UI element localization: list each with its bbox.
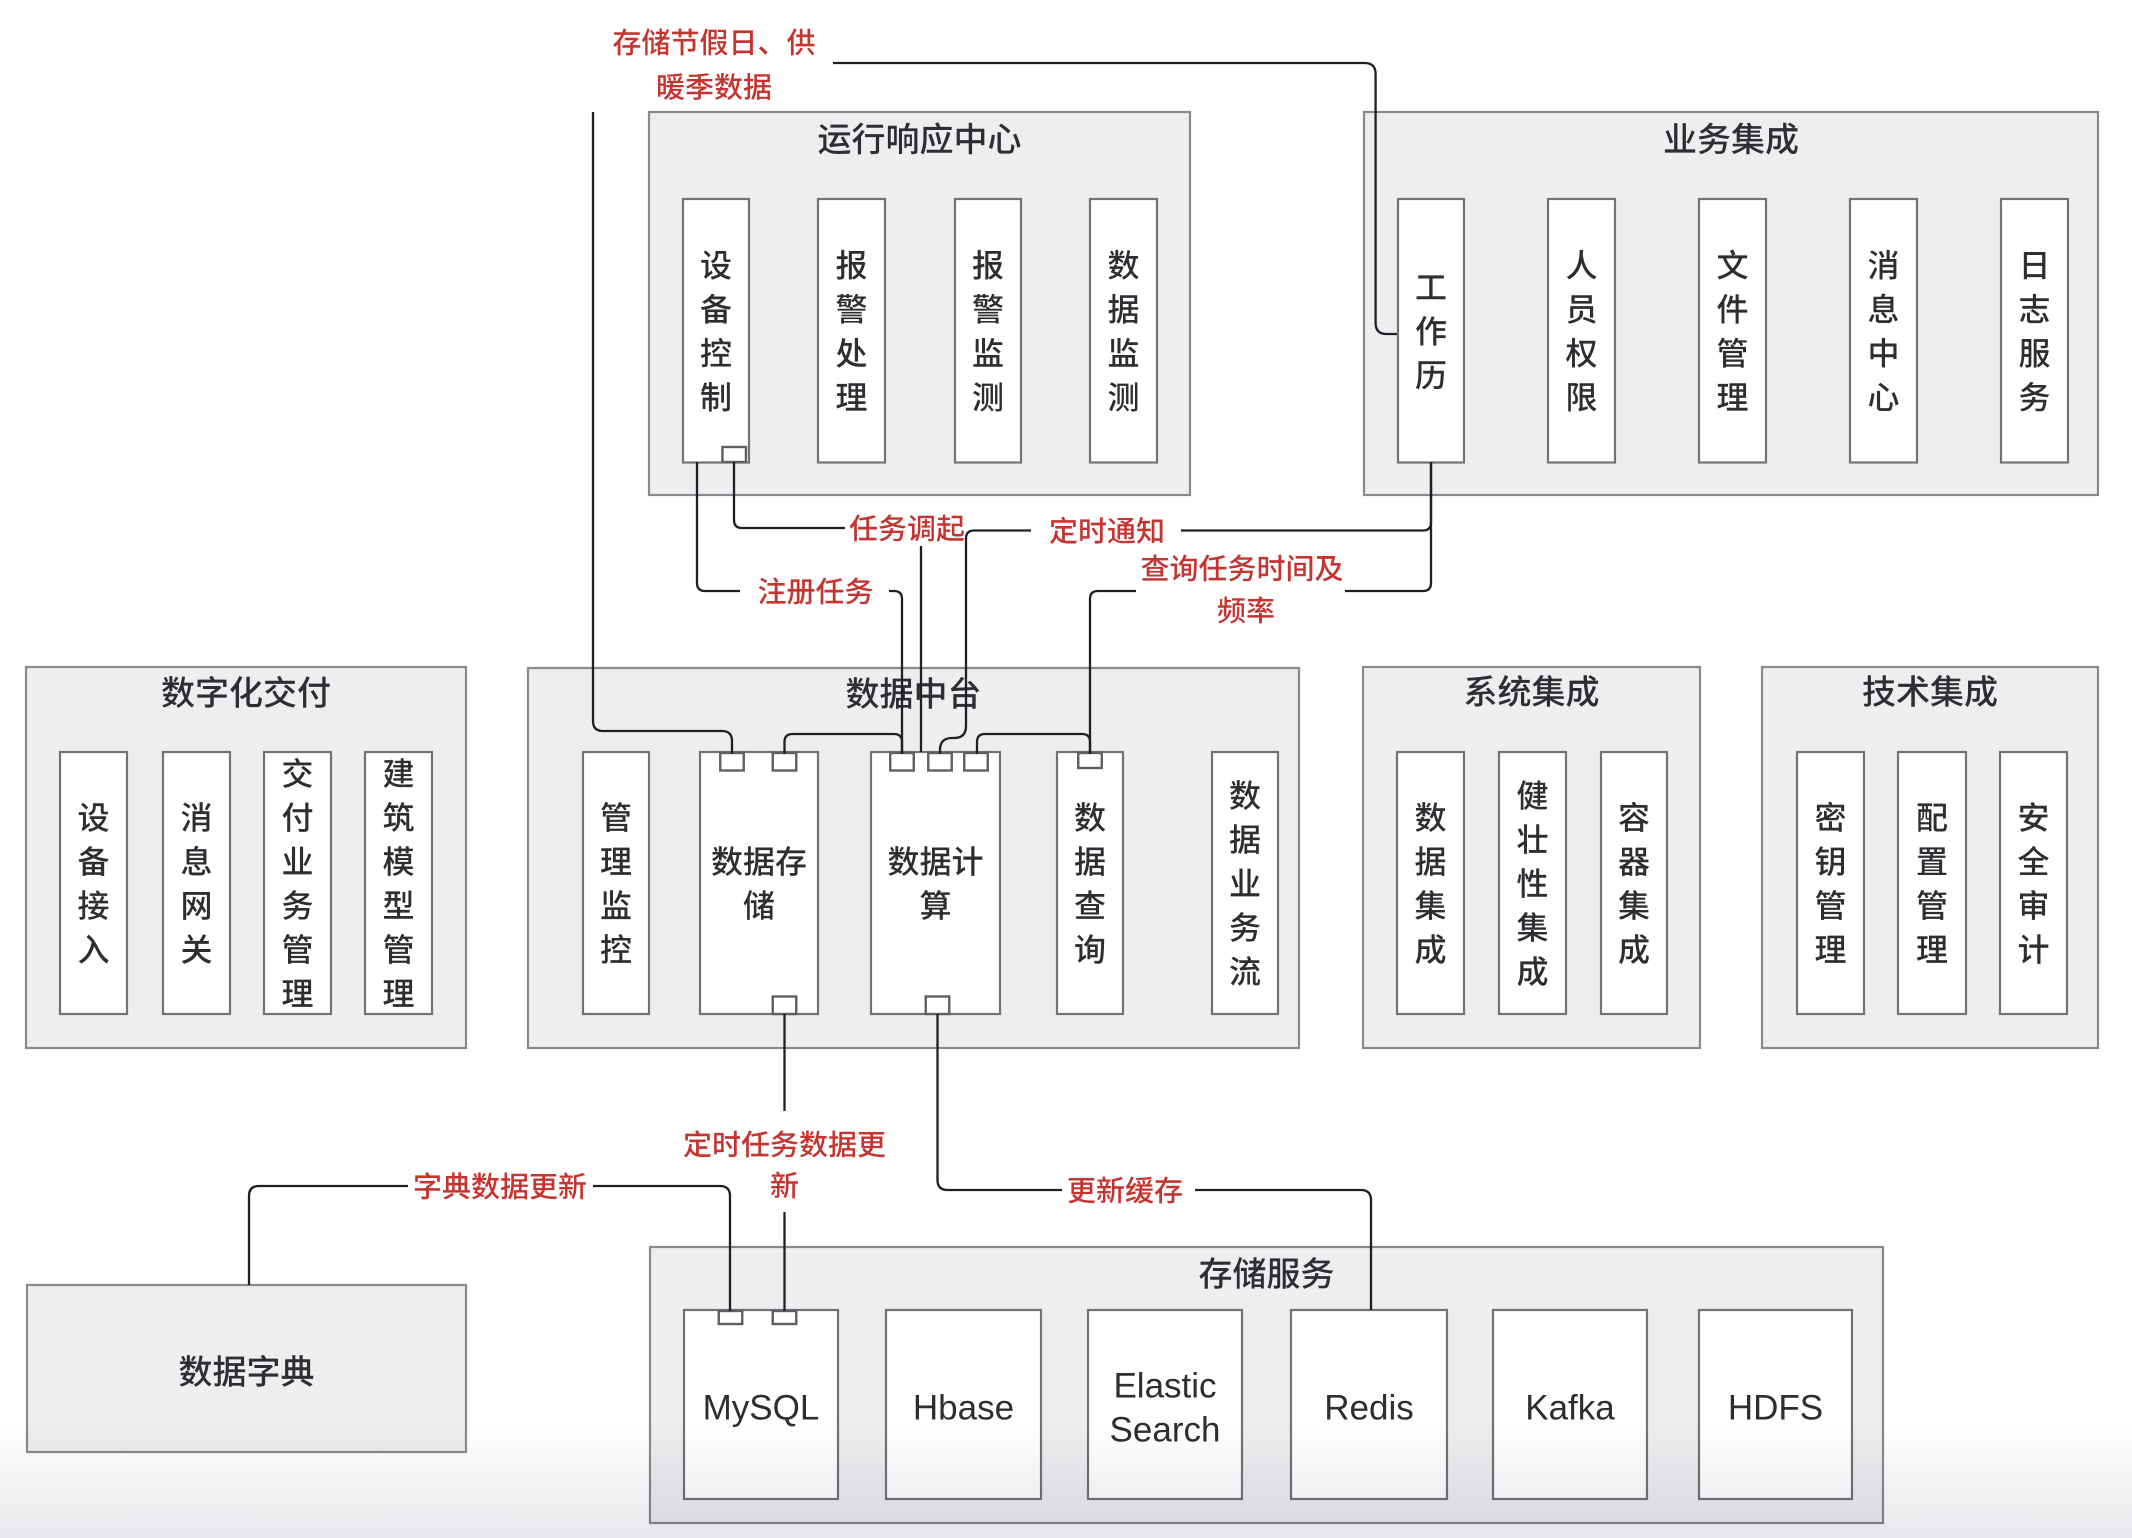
svg-text:Elastic: Elastic bbox=[1113, 1367, 1216, 1406]
